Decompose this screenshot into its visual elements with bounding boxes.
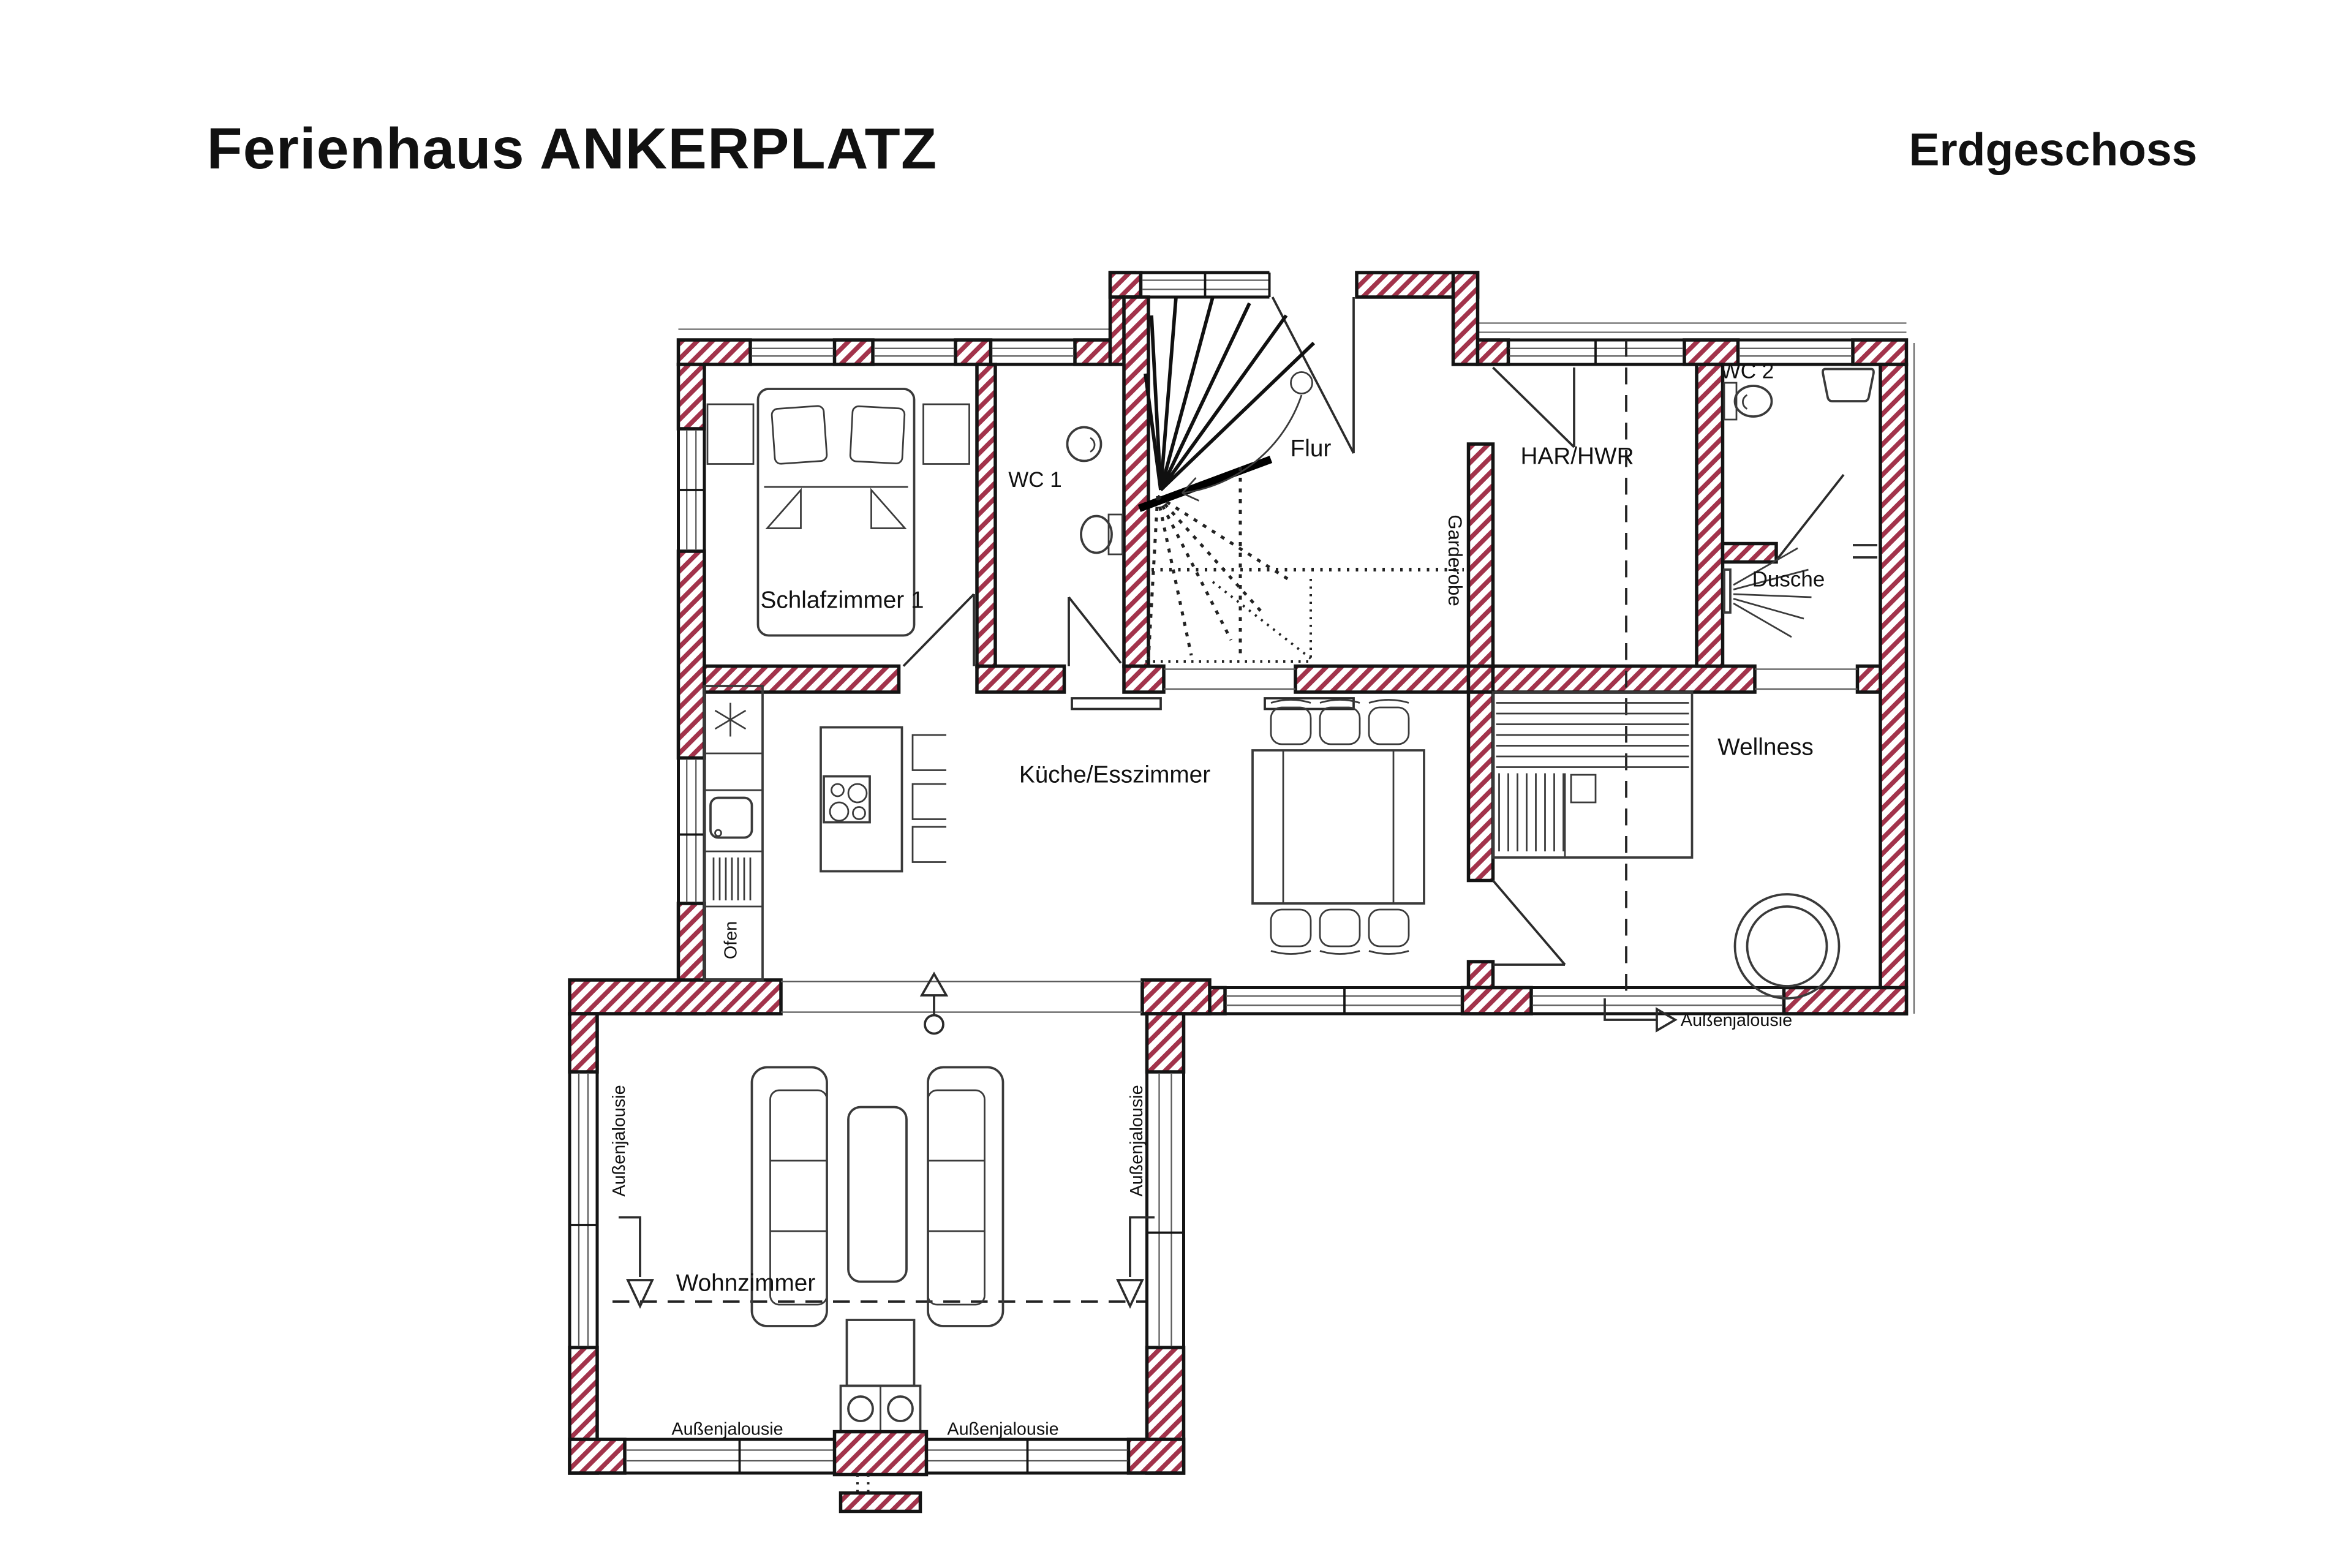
floor-plan-page: Ferienhaus ANKERPLATZ Erdgeschoss	[0, 0, 2352, 1568]
floor-plan-svg: Ferienhaus ANKERPLATZ Erdgeschoss	[0, 0, 2352, 1568]
room-label-flur: Flur	[1291, 435, 1332, 462]
label-aussenjalousie-right: Außenjalousie	[1127, 1085, 1147, 1196]
room-label-har-hwr: HAR/HWR	[1520, 443, 1634, 470]
dishwasher-icon	[714, 858, 750, 900]
label-aussenjalousie-left: Außenjalousie	[609, 1085, 629, 1196]
room-label-kueche-esszimmer: Küche/Esszimmer	[1019, 762, 1210, 788]
label-aussenjalousie-bottom-left: Außenjalousie	[671, 1420, 783, 1439]
label-aussenjalousie-bottom-right: Außenjalousie	[947, 1420, 1058, 1439]
chimney-block	[835, 1432, 927, 1475]
room-label-wellness: Wellness	[1717, 734, 1813, 761]
room-label-schlafzimmer-1: Schlafzimmer 1	[760, 587, 924, 614]
floor-label: Erdgeschoss	[1909, 124, 2197, 175]
room-label-wohnzimmer: Wohnzimmer	[676, 1270, 816, 1297]
chimney-block	[841, 1493, 921, 1512]
label-aussenjalousie-wellness: Außenjalousie	[1681, 1011, 1792, 1030]
room-label-wc1: WC 1	[1008, 468, 1062, 492]
room-label-wc2: WC 2	[1721, 360, 1774, 383]
room-label-garderobe: Garderobe	[1444, 514, 1466, 606]
room-label-dusche: Dusche	[1752, 568, 1825, 592]
label-ofen: Ofen	[722, 921, 741, 959]
page-title: Ferienhaus ANKERPLATZ	[207, 116, 938, 181]
